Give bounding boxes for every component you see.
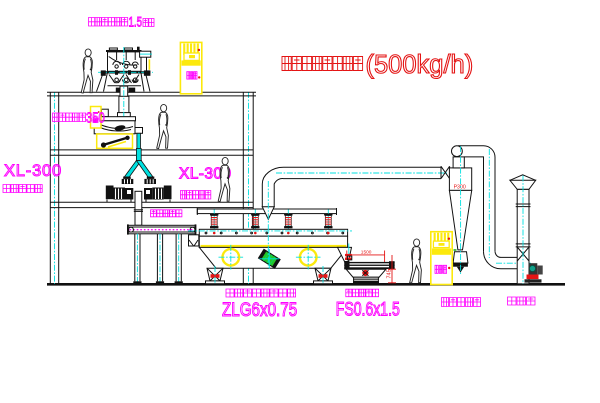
svg-text:745: 745 (387, 269, 393, 278)
svg-text:ZLG6x0.75: ZLG6x0.75 (222, 298, 297, 320)
svg-text:1.5: 1.5 (129, 15, 143, 30)
svg-text:350: 350 (86, 109, 105, 126)
svg-text:FS0.6x1.5: FS0.6x1.5 (336, 298, 400, 320)
svg-text:P300: P300 (454, 185, 466, 191)
svg-text:XL-300: XL-300 (4, 162, 62, 180)
svg-text:1500: 1500 (361, 249, 372, 255)
svg-text:(500kg/h): (500kg/h) (366, 51, 474, 79)
